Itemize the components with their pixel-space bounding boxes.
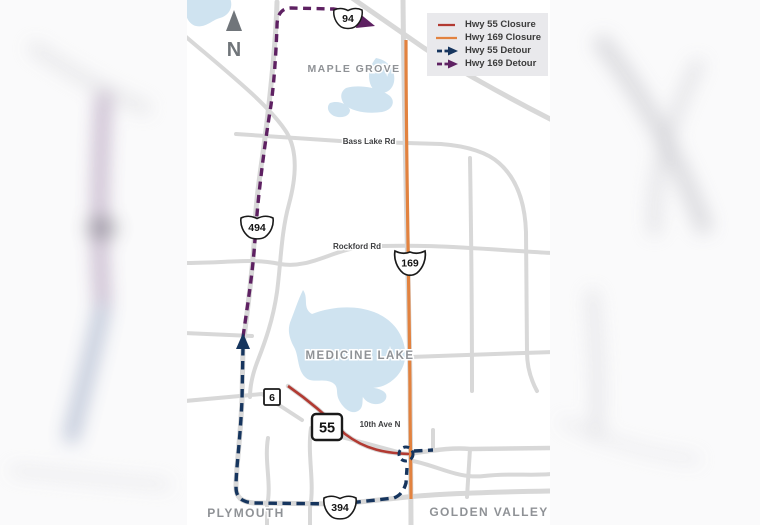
svg-text:6: 6 [269, 392, 275, 404]
hwy169-detour-arrow-swatch [435, 58, 459, 70]
legend-label: Hwy 55 Closure [465, 19, 536, 30]
pond-southeast [362, 388, 387, 404]
label-maple-grove: MAPLE GROVE [308, 63, 401, 75]
legend-label: Hwy 169 Detour [465, 58, 536, 69]
legend-item-hwy169-detour: Hwy 169 Detour [435, 57, 540, 70]
shield-i494: 494 [241, 216, 273, 239]
svg-text:169: 169 [401, 258, 419, 270]
svg-text:94: 94 [342, 13, 354, 25]
svg-text:55: 55 [319, 421, 335, 437]
shield-i394: 394 [324, 496, 356, 519]
north-arrow-icon: N [226, 10, 242, 61]
legend-label: Hwy 169 Closure [465, 32, 541, 43]
shield-cr6: 6 [264, 389, 280, 405]
screenshot-stage: 94 494 394 169 55 6 MAPL [0, 0, 760, 525]
shield-mn55: 55 [312, 414, 342, 440]
lake-top-left [187, 0, 231, 26]
label-bass-lake-rd: Bass Lake Rd [343, 137, 396, 146]
legend-item-hwy169-closure: Hwy 169 Closure [435, 31, 540, 44]
label-golden-valley: GOLDEN VALLEY [429, 505, 548, 519]
hwy169-closure-line-swatch [435, 32, 459, 44]
road-gv-wavy [413, 461, 550, 476]
road-wavy-v2 [310, 428, 312, 525]
legend-item-hwy55-closure: Hwy 55 Closure [435, 18, 540, 31]
hwy169-detour-line [243, 8, 362, 337]
map-legend: Hwy 55 Closure Hwy 169 Closure Hwy 55 De… [427, 13, 548, 76]
svg-text:N: N [227, 39, 241, 61]
label-rockford-rd: Rockford Rd [333, 242, 381, 251]
label-plymouth: PLYMOUTH [207, 506, 284, 520]
hwy55-detour-arrow-swatch [435, 45, 459, 57]
road-gv-v [467, 449, 470, 497]
shield-us169: 169 [395, 251, 426, 275]
svg-text:394: 394 [331, 502, 349, 514]
legend-item-hwy55-detour: Hwy 55 Detour [435, 44, 540, 57]
svg-text:494: 494 [248, 222, 266, 234]
legend-label: Hwy 55 Detour [465, 45, 531, 56]
road-map: 94 494 394 169 55 6 MAPL [187, 0, 550, 525]
hwy55-closure-line-swatch [435, 19, 459, 31]
label-10th-ave-n: 10th Ave N [360, 420, 401, 429]
label-medicine-lake: MEDICINE LAKE [306, 350, 415, 362]
